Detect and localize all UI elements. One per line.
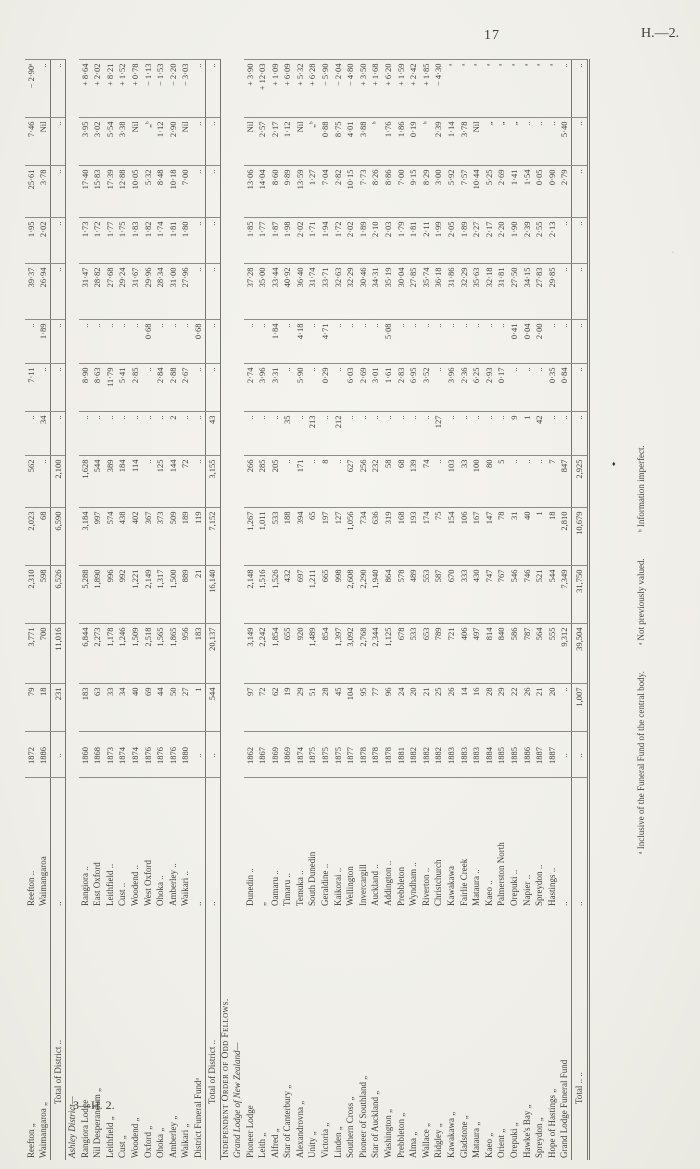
year-cell: 1886 [521, 732, 534, 778]
value-cell: 1,526 [269, 566, 282, 624]
value-cell: ᵃ [533, 60, 546, 118]
value-cell: Nil [38, 118, 51, 166]
value-cell: 3,184 [79, 508, 92, 566]
value-cell: 114 [129, 456, 142, 508]
value-cell: 26 [521, 684, 534, 732]
value-cell: 787 [521, 624, 534, 684]
value-cell: 35 [282, 412, 295, 456]
value-cell: ᵃ [508, 60, 521, 118]
lodge-name-cell: Linden „ [332, 908, 345, 1160]
lodge-name-cell: Star of Canterbury „ [282, 908, 295, 1160]
value-cell: 32·63 [332, 264, 345, 320]
value-cell: .. [154, 412, 167, 456]
location-cell: „ [256, 778, 269, 908]
table-row: Washington „Addington ..1878961,12586431… [382, 60, 395, 1160]
year-cell: .. [51, 732, 66, 778]
value-cell: 0·68 [142, 320, 155, 364]
location-cell: Wellington [344, 778, 357, 908]
lodge-name-cell: Unity „ [307, 908, 320, 1160]
year-cell: 1875 [319, 732, 332, 778]
lodge-name-cell: District Funeral Fundᵃ [192, 908, 205, 1160]
location-cell: .. [559, 778, 572, 908]
year-cell: 1883 [470, 732, 483, 778]
value-cell: 27·85 [407, 264, 420, 320]
value-cell: 1 [533, 508, 546, 566]
year-cell: 1883 [458, 732, 471, 778]
value-cell: 40·92 [282, 264, 295, 320]
value-cell: .. [483, 412, 496, 456]
value-cell: 168 [395, 508, 408, 566]
value-cell: 1,940 [370, 566, 383, 624]
value-cell: 1,628 [79, 456, 92, 508]
year-cell: 1862 [244, 732, 257, 778]
value-cell: − 1·53 [154, 60, 167, 118]
lodge-name-cell: Cust „ [117, 908, 130, 1160]
value-cell: 51 [307, 684, 320, 732]
value-cell: 5·90 [294, 364, 307, 412]
value-cell: 2·90 [167, 118, 180, 166]
value-cell: .. [117, 412, 130, 456]
value-cell: 319 [382, 508, 395, 566]
value-cell: ᵃ [521, 60, 534, 118]
value-cell: .. [104, 412, 117, 456]
value-cell: 2,100 [51, 456, 66, 508]
rotated-table-wrapper: Reefton „Reefton ..1872793,7712,3102,023… [25, 60, 643, 1160]
lodge-name-cell: Kaeo „ [483, 908, 496, 1160]
value-cell: 746 [521, 566, 534, 624]
value-cell: 68 [395, 456, 408, 508]
table-row: Total of District ......23111,0166,5266,… [51, 60, 66, 1160]
value-cell: 1·72 [91, 218, 104, 264]
value-cell: .. [205, 264, 220, 320]
year-cell: 1877 [344, 732, 357, 778]
table-row: Kaeo „Kaeo ..18842881474714780..2·93..32… [483, 60, 496, 1160]
value-cell: 389 [104, 456, 117, 508]
value-cell: 20 [407, 684, 420, 732]
value-cell: .. [142, 456, 155, 508]
value-cell: 8·26 [370, 166, 383, 218]
value-cell: 9·89 [282, 166, 295, 218]
value-cell: .. [483, 320, 496, 364]
value-cell: .. [496, 412, 509, 456]
value-cell: 1·89 [357, 218, 370, 264]
value-cell: 33·71 [319, 264, 332, 320]
value-cell: 2·02 [344, 218, 357, 264]
table-row: Ashley District— [66, 60, 79, 1160]
value-cell: 75 [433, 508, 446, 566]
value-cell: 956 [180, 624, 193, 684]
value-cell: 20 [546, 684, 559, 732]
year-cell: 1883 [445, 732, 458, 778]
value-cell: 2·88 [167, 364, 180, 412]
value-cell: .. [51, 218, 66, 264]
value-cell: 42 [533, 412, 546, 456]
value-cell: 19 [282, 684, 295, 732]
table-row: Total of District ......54420,13716,1407… [205, 60, 220, 1160]
value-cell: 1,178 [104, 624, 117, 684]
value-cell: „ [496, 118, 509, 166]
value-cell: 80 [483, 456, 496, 508]
value-cell: .. [129, 320, 142, 364]
value-cell: 144 [167, 456, 180, 508]
value-cell: 28·82 [91, 264, 104, 320]
value-cell: 3·02 [91, 118, 104, 166]
value-cell: 3·96 [445, 364, 458, 412]
value-cell: 2·55 [533, 218, 546, 264]
value-cell: 2·79 [559, 166, 572, 218]
value-cell: 1,500 [167, 566, 180, 624]
year-cell: 1878 [370, 732, 383, 778]
table-row: Alexandrovna „Temuka ..18742992069739417… [294, 60, 307, 1160]
value-cell: + 6·28 [307, 60, 320, 118]
value-cell: 0·05 [533, 166, 546, 218]
value-cell: 104 [344, 684, 357, 732]
table-row: Star of Canterbury „Timaru ..18691965543… [282, 60, 295, 1160]
value-cell: 79 [25, 684, 38, 732]
value-cell: 119 [192, 508, 205, 566]
lodge-name-cell: Total .. .. [572, 908, 589, 1160]
value-cell: .. [104, 320, 117, 364]
value-cell: 34 [38, 412, 51, 456]
value-cell: 2,768 [357, 624, 370, 684]
value-cell: .. [332, 364, 345, 412]
value-cell: 8·75 [332, 118, 345, 166]
year-cell: 1885 [508, 732, 521, 778]
value-cell: 747 [483, 566, 496, 624]
value-cell: .. [38, 456, 51, 508]
lodge-name-cell: Wallace „ [420, 908, 433, 1160]
value-cell: 2·69 [357, 364, 370, 412]
location-cell: .. [205, 778, 220, 908]
value-cell: 367 [142, 508, 155, 566]
value-cell: 670 [445, 566, 458, 624]
value-cell: 21 [192, 566, 205, 624]
value-cell: .. [51, 60, 66, 118]
value-cell: 40 [521, 508, 534, 566]
value-cell: 31·86 [445, 264, 458, 320]
value-cell: 28 [483, 684, 496, 732]
value-cell: 1,007 [572, 684, 589, 732]
value-cell: 1·14 [445, 118, 458, 166]
value-cell: + 1·52 [117, 60, 130, 118]
value-cell: 3·88 [357, 118, 370, 166]
value-cell: .. [192, 218, 205, 264]
value-cell: 2·39 [433, 118, 446, 166]
value-cell: 1,211 [307, 566, 320, 624]
value-cell: .. [420, 320, 433, 364]
value-cell: 4·71 [319, 320, 332, 364]
value-cell: 31·47 [79, 264, 92, 320]
value-cell: ᵃ [546, 60, 559, 118]
value-cell: 9,312 [559, 624, 572, 684]
location-cell: Wyndham .. [407, 778, 420, 908]
location-cell: Kaeo .. [483, 778, 496, 908]
value-cell: 14 [458, 684, 471, 732]
table-row: Victoria „Geraldine ..1875288546651978..… [319, 60, 332, 1160]
value-cell: 2 [167, 412, 180, 456]
value-cell: 0·19 [407, 118, 420, 166]
value-cell: 4·18 [294, 320, 307, 364]
value-cell: 193 [407, 508, 420, 566]
value-cell: .. [508, 456, 521, 508]
value-cell: .. [559, 412, 572, 456]
location-cell: Mataura .. [470, 778, 483, 908]
value-cell: 2·74 [244, 364, 257, 412]
lodge-name-cell: Hope of Hastings „ [546, 908, 559, 1160]
value-cell: 43 [205, 412, 220, 456]
value-cell: 2·39 [521, 218, 534, 264]
value-cell: 0·88 [319, 118, 332, 166]
location-cell: .. [51, 778, 66, 908]
value-cell: 0·17 [496, 364, 509, 412]
value-cell: 95 [357, 684, 370, 732]
value-cell: .. [445, 412, 458, 456]
year-cell: 1887 [533, 732, 546, 778]
year-cell: 1878 [357, 732, 370, 778]
section-heading: Ashley District— [66, 60, 79, 1160]
value-cell: 21 [420, 684, 433, 732]
lodge-name-cell: Prebbleton „ [395, 908, 408, 1160]
lodge-name-cell: Grand Lodge Funeral Fund [559, 908, 572, 1160]
value-cell: 1·77 [104, 218, 117, 264]
value-cell: 1 [192, 684, 205, 732]
value-cell: 62 [269, 684, 282, 732]
value-cell: 2,344 [370, 624, 383, 684]
lodge-name-cell: Total of District .. [205, 908, 220, 1160]
value-cell: .. [407, 412, 420, 456]
value-cell: .. [51, 412, 66, 456]
value-cell: .. [496, 320, 509, 364]
value-cell: .. [91, 320, 104, 364]
value-cell: 2·27 [470, 218, 483, 264]
footnotes: ᵃ Inclusive of the Funeral Fund of the c… [636, 292, 646, 854]
value-cell: 7·04 [319, 166, 332, 218]
value-cell: 232 [370, 456, 383, 508]
value-cell: .. [572, 320, 589, 364]
value-cell: 1,267 [244, 508, 257, 566]
value-cell: 1·73 [79, 218, 92, 264]
value-cell: .. [192, 166, 205, 218]
value-cell: .. [508, 364, 521, 412]
value-cell: − 4·30 [433, 60, 446, 118]
value-cell: Nil [180, 118, 193, 166]
value-cell: 655 [282, 624, 295, 684]
value-cell: .. [458, 320, 471, 364]
value-cell: 697 [294, 566, 307, 624]
value-cell: 544 [205, 684, 220, 732]
value-cell: 35·63 [470, 264, 483, 320]
value-cell: 30·04 [395, 264, 408, 320]
value-cell: 2·69 [496, 166, 509, 218]
table-row: Orient „Palmerston North188529840767785.… [496, 60, 509, 1160]
value-cell: 2·36 [458, 364, 471, 412]
year-cell: 1876 [167, 732, 180, 778]
value-cell: 25 [433, 684, 446, 732]
value-cell: + 1·09 [269, 60, 282, 118]
value-cell: 721 [445, 624, 458, 684]
value-cell: − 1·13 [142, 60, 155, 118]
value-cell: .. [572, 60, 589, 118]
year-cell: 1875 [332, 732, 345, 778]
value-cell: .. [395, 412, 408, 456]
location-cell: Geraldine .. [319, 778, 332, 908]
value-cell: 205 [269, 456, 282, 508]
value-cell: 678 [395, 624, 408, 684]
value-cell: 1·74 [154, 218, 167, 264]
location-cell: Waikari .. [180, 778, 193, 908]
lodge-name-cell: Leithfield „ [104, 908, 117, 1160]
year-cell: .. [572, 732, 589, 778]
value-cell: 578 [395, 566, 408, 624]
value-cell: .. [244, 412, 257, 456]
lodge-name-cell: Spreydon „ [533, 908, 546, 1160]
value-cell: .. [357, 320, 370, 364]
value-cell: .. [25, 320, 38, 364]
value-cell: 8·86 [382, 166, 395, 218]
value-cell: 29·24 [117, 264, 130, 320]
value-cell: 167 [470, 508, 483, 566]
location-cell: Auckland .. [370, 778, 383, 908]
location-cell: Woodend .. [129, 778, 142, 908]
value-cell: 2,310 [25, 566, 38, 624]
value-cell: 7·57 [458, 166, 471, 218]
value-cell: 1,565 [154, 624, 167, 684]
scanned-document-page: 17 H.—2. Reefton „Reefton ..1872793,7712… [0, 0, 700, 1169]
value-cell: .. [357, 412, 370, 456]
value-cell: 2·11 [420, 218, 433, 264]
value-cell: 6·03 [344, 364, 357, 412]
value-cell: 72 [180, 456, 193, 508]
value-cell: 432 [282, 566, 295, 624]
value-cell: 97 [244, 684, 257, 732]
value-cell: 65 [307, 508, 320, 566]
value-cell: .. [282, 364, 295, 412]
year-cell: .. [192, 732, 205, 778]
footnote-a1: ᵃ Inclusive of the Funeral Fund of the c… [636, 671, 646, 854]
table-row: Leith „„1867722,2421,5161,011285..3·96..… [256, 60, 269, 1160]
value-cell: 127 [332, 508, 345, 566]
value-cell: 521 [533, 566, 546, 624]
value-cell: 31·00 [167, 264, 180, 320]
value-cell: 7·46 [25, 118, 38, 166]
value-cell: 1·79 [395, 218, 408, 264]
value-cell: 0·04 [521, 320, 534, 364]
year-cell: 1872 [25, 732, 38, 778]
value-cell: „ᵇ [142, 118, 155, 166]
value-cell: 564 [533, 624, 546, 684]
value-cell: + 0·78 [129, 60, 142, 118]
value-cell: .. [79, 320, 92, 364]
value-cell: 44 [154, 684, 167, 732]
value-cell: 35·74 [420, 264, 433, 320]
location-cell: Waimangaroa [38, 778, 51, 908]
value-cell: 394 [294, 508, 307, 566]
value-cell: 1,317 [154, 566, 167, 624]
value-cell: 8·90 [79, 364, 92, 412]
value-cell: 1·99 [433, 218, 446, 264]
location-cell: Hastings .. [546, 778, 559, 908]
value-cell: 14·04 [256, 166, 269, 218]
value-cell: .. [344, 320, 357, 364]
value-cell: 25·61 [25, 166, 38, 218]
value-cell: 700 [38, 624, 51, 684]
value-cell: .. [180, 320, 193, 364]
value-cell: + 1·85 [420, 60, 433, 118]
value-cell: .. [142, 412, 155, 456]
value-cell: + 3·50 [357, 60, 370, 118]
table-row: Waimangaroa „Waimangaroa18861870059868..… [38, 60, 51, 1160]
value-cell: 29 [294, 684, 307, 732]
value-cell: 1·12 [154, 118, 167, 166]
year-cell: 1882 [433, 732, 446, 778]
value-cell: 35·00 [256, 264, 269, 320]
value-cell: 5·54 [104, 118, 117, 166]
value-cell: 2·02 [38, 218, 51, 264]
value-cell: .. [420, 412, 433, 456]
value-cell: 406 [458, 624, 471, 684]
value-cell: 9 [508, 412, 521, 456]
value-cell: 33 [104, 684, 117, 732]
value-cell: .. [319, 412, 332, 456]
value-cell: 184 [117, 456, 130, 508]
location-cell: Palmerston North [496, 778, 509, 908]
value-cell: .. [167, 320, 180, 364]
value-cell: 103 [445, 456, 458, 508]
lodge-name-cell: Reefton „ [25, 908, 38, 1160]
value-cell: 1·75 [117, 218, 130, 264]
location-cell: Oamaru .. [269, 778, 282, 908]
value-cell: 1,011 [256, 508, 269, 566]
value-cell: 39·37 [25, 264, 38, 320]
table-row: Spreydon „Spreydon ..1887215645211..42..… [533, 60, 546, 1160]
value-cell: 183 [79, 684, 92, 732]
value-cell: 767 [496, 566, 509, 624]
value-cell: .. [25, 412, 38, 456]
value-cell: 68 [38, 508, 51, 566]
value-cell: 189 [180, 508, 193, 566]
value-cell: .. [433, 320, 446, 364]
year-cell: .. [205, 732, 220, 778]
value-cell: 3,149 [244, 624, 257, 684]
value-cell: 3·78 [458, 118, 471, 166]
value-cell: 1·82 [142, 218, 155, 264]
value-cell: .. [244, 320, 257, 364]
value-cell: 1·71 [307, 218, 320, 264]
value-cell: ᵃ [483, 60, 496, 118]
lodge-name-cell: Pioneer Lodge [244, 908, 257, 1160]
valuation-table-body: Reefton „Reefton ..1872793,7712,3102,023… [25, 60, 589, 1160]
value-cell: + 8·21 [104, 60, 117, 118]
value-cell: 21 [533, 684, 546, 732]
value-cell: 32·29 [458, 264, 471, 320]
value-cell: 7·00 [180, 166, 193, 218]
value-cell: 2·13 [546, 218, 559, 264]
value-cell: 2,023 [25, 508, 38, 566]
value-cell: .. [142, 364, 155, 412]
value-cell: .. [117, 320, 130, 364]
value-cell: 598 [38, 566, 51, 624]
value-cell: 1,125 [382, 624, 395, 684]
value-cell: 17·40 [79, 166, 92, 218]
value-cell: 1·41 [508, 166, 521, 218]
value-cell: 2·67 [180, 364, 193, 412]
value-cell: 509 [167, 508, 180, 566]
value-cell: 2·17 [269, 118, 282, 166]
location-cell: Kawakawa [445, 778, 458, 908]
location-cell: Invercargill [357, 778, 370, 908]
lodge-name-cell: Orient „ [496, 908, 509, 1160]
year-cell: 1878 [382, 732, 395, 778]
